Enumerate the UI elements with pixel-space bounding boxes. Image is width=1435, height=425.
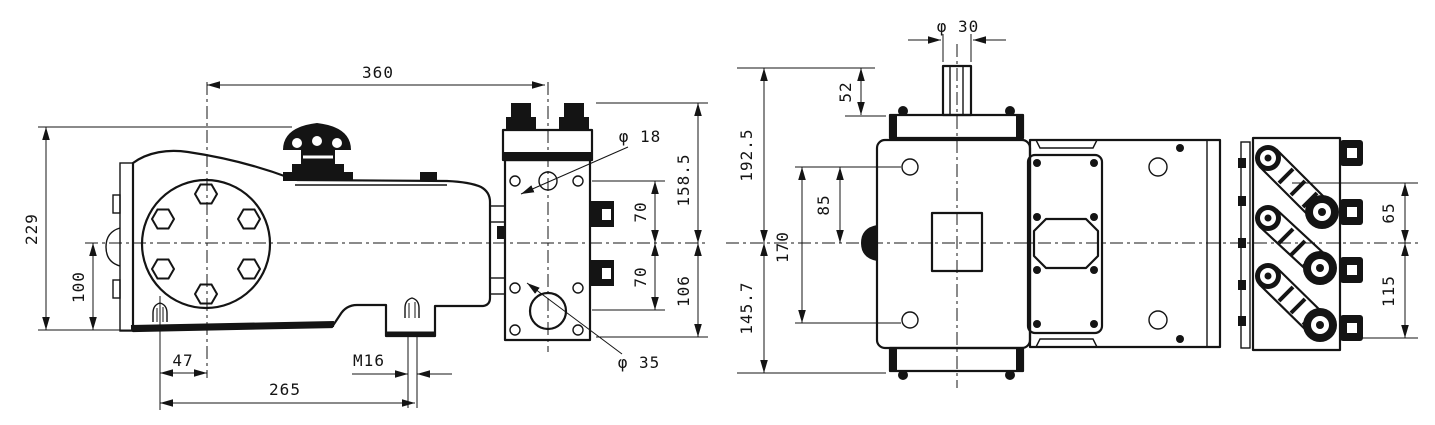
- dim-top-to-center: 158.5: [674, 153, 693, 206]
- plunger-neck-upper: [490, 206, 505, 222]
- flange-circle: [142, 180, 270, 308]
- fitting-right-hex: [559, 117, 589, 131]
- base-plate: [131, 324, 334, 328]
- manifold-hole-f: [573, 325, 583, 335]
- dim-shaft-diameter: φ 30: [937, 17, 980, 36]
- right-stud: [405, 298, 419, 318]
- fluid-end-hole-top: [1149, 158, 1167, 176]
- knob-base-upper: [292, 164, 344, 172]
- valve-plugs: [1340, 140, 1363, 341]
- manifold-left-nub: [497, 226, 505, 239]
- dim-hole-spacing: 170: [773, 231, 792, 263]
- dim-shaft-length: 52: [836, 81, 855, 102]
- fluid-end-body: [1028, 140, 1250, 348]
- corner-screw-bottom: [1176, 335, 1184, 343]
- fitting-left-top: [511, 103, 531, 117]
- fitting-left-hex: [506, 117, 536, 131]
- side-boss: [861, 225, 877, 261]
- flange-bolt-3: [238, 260, 260, 279]
- dim-outlet-hole: φ 35: [618, 353, 661, 372]
- dim-center-to-bottom: 106: [674, 275, 693, 307]
- bearing-flange: [142, 180, 270, 308]
- vent-tab: [420, 172, 437, 181]
- flange-bolt-1: [195, 185, 217, 204]
- flange-bolt-6: [152, 210, 174, 229]
- flange-bolt-front-left: [898, 106, 908, 116]
- valve-block: [1253, 138, 1363, 350]
- dim-stud-spacing: 265: [269, 380, 301, 399]
- dim-port-upper: 70: [631, 201, 650, 222]
- top-recess: [1036, 140, 1097, 148]
- crankcase-hole-top: [902, 159, 918, 175]
- flange-bolt-2: [238, 210, 260, 229]
- dim-valve-span: 115: [1379, 275, 1398, 307]
- fluid-end-hole-bottom: [1149, 311, 1167, 329]
- dim-hole-to-center: 85: [814, 194, 833, 215]
- corner-screw-top: [1176, 144, 1184, 152]
- port-lower-opening: [602, 268, 611, 279]
- manifold-hole-a: [510, 176, 520, 186]
- dim-stud-offset: 47: [172, 351, 193, 370]
- side-view: 360 229 100 47 M16 265 7: [22, 63, 708, 410]
- manifold-hole-d: [573, 283, 583, 293]
- oil-filler-knob: [283, 123, 353, 181]
- bearing-boss: [106, 228, 120, 266]
- knob-dot-2: [312, 136, 322, 146]
- fitting-right-top: [564, 103, 584, 117]
- dim-centerline-height: 100: [69, 271, 88, 303]
- cover-plate: [1028, 155, 1102, 333]
- dim-center-to-rear: 145.7: [737, 281, 756, 334]
- port-upper-opening: [602, 209, 611, 220]
- flange-bolt-rear-left: [898, 370, 908, 380]
- flange-bolt-front-right: [1005, 106, 1015, 116]
- crankcase-hole-bottom: [902, 312, 918, 328]
- cover-tab-lower: [113, 280, 120, 298]
- side-view-dimensions: 360 229 100 47 M16 265 7: [22, 63, 708, 403]
- manifold-hole-b: [573, 176, 583, 186]
- spacer-nubs: [1238, 158, 1246, 326]
- crankcase-body: [877, 140, 1030, 348]
- manifold-hole-e: [510, 325, 520, 335]
- dim-port-lower: 70: [631, 266, 650, 287]
- dim-stud-thread: M16: [353, 351, 385, 370]
- dim-gauge-hole: φ 18: [619, 127, 662, 146]
- knob-dot-1: [292, 138, 302, 148]
- dim-overall-length: 360: [362, 63, 394, 82]
- flange-bolt-5: [152, 260, 174, 279]
- drawing-canvas: 360 229 100 47 M16 265 7: [0, 0, 1435, 425]
- knob-dot-3: [332, 138, 342, 148]
- plunger-neck-lower: [490, 278, 505, 294]
- rear-cover-plate: [120, 163, 133, 331]
- flange-bolt-4: [195, 285, 217, 304]
- engineering-drawing: 360 229 100 47 M16 265 7: [0, 0, 1435, 425]
- flange-bolt-rear-right: [1005, 370, 1015, 380]
- dim-front-to-center: 192.5: [737, 128, 756, 181]
- cover-tab-upper: [113, 195, 120, 213]
- top-view: φ 30 52 192.5 145.7 170 85: [726, 17, 1420, 388]
- dim-valve-to-center: 65: [1379, 202, 1398, 223]
- dim-overall-height: 229: [22, 213, 41, 245]
- knob-base-lower: [283, 172, 353, 181]
- manifold-hole-c: [510, 283, 520, 293]
- manifold-top-gasket: [503, 152, 592, 160]
- bottom-recess: [1036, 339, 1097, 347]
